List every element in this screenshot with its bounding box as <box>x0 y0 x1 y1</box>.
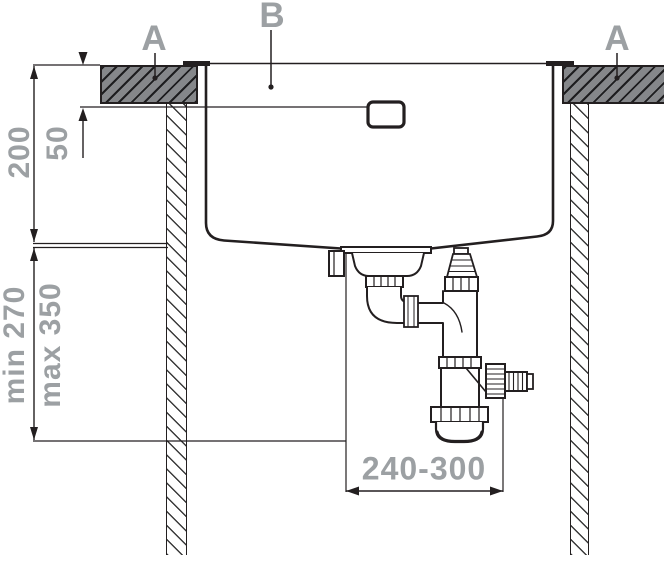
dimension-label-max-350: max 350 <box>34 282 68 407</box>
sink-bowl <box>183 61 574 249</box>
callout-leaders <box>152 30 619 90</box>
dimension-label-200: 200 <box>3 125 37 178</box>
strainer-cup <box>352 253 424 276</box>
dimension-label-50: 50 <box>41 125 75 160</box>
dimension-label-240-300: 240-300 <box>362 451 486 488</box>
label-b-center: B <box>259 0 284 36</box>
trap-body <box>441 368 479 408</box>
overflow-opening <box>368 102 404 127</box>
dimension-min-max <box>30 248 346 441</box>
drain-flange <box>341 247 431 253</box>
label-a-right: A <box>604 19 629 59</box>
sink-rim-right <box>546 61 574 66</box>
dimension-50 <box>79 52 369 158</box>
dimension-label-min-270: min 270 <box>0 286 32 405</box>
outlet-thread <box>505 372 527 391</box>
installation-diagram: A B A 200 50 min 270 max 350 240-300 <box>0 0 664 562</box>
diagram-linework <box>0 0 664 562</box>
label-a-left: A <box>141 19 166 59</box>
pipe-coupling <box>404 296 418 327</box>
drain-side-cap <box>329 251 344 276</box>
